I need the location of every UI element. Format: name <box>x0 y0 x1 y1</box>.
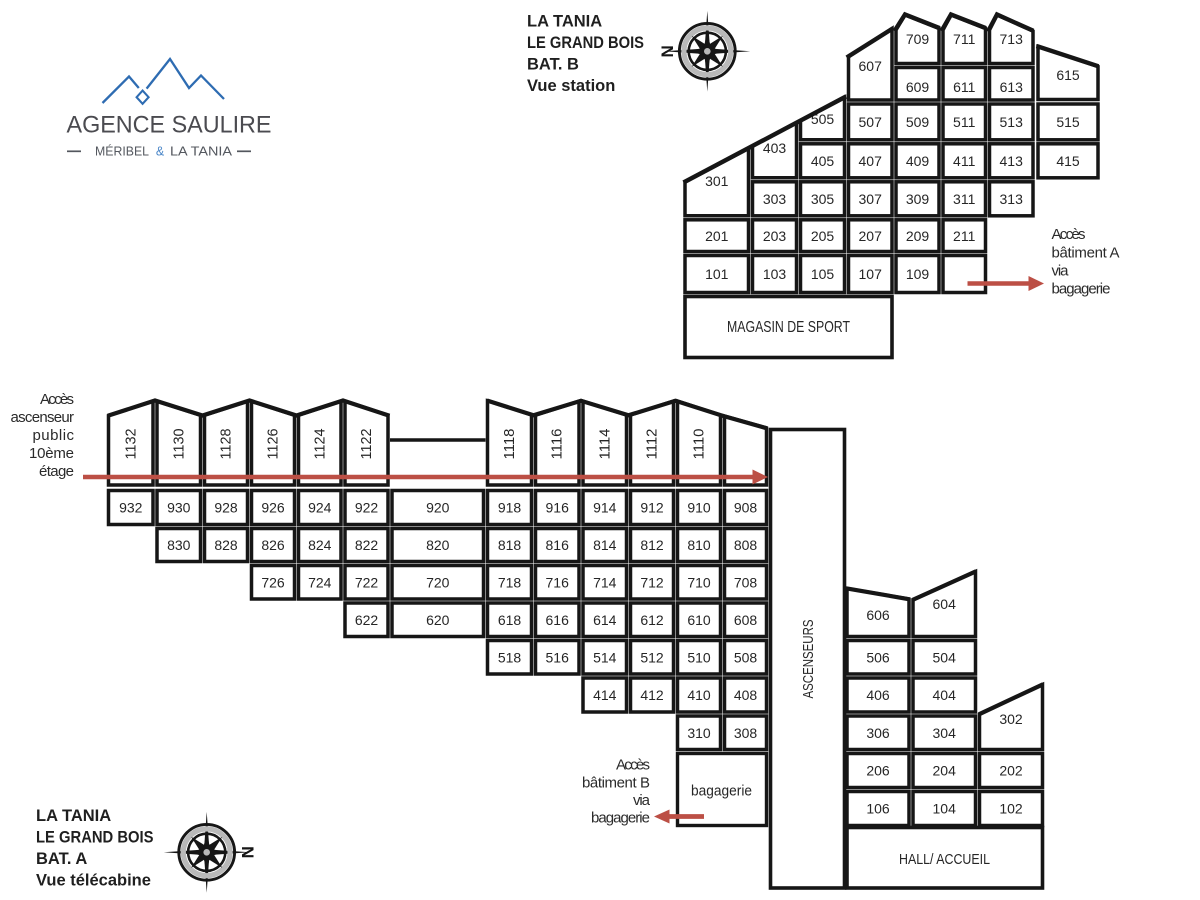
svg-text:bâtiment A: bâtiment A <box>1052 245 1120 262</box>
svg-text:609: 609 <box>906 79 930 95</box>
svg-text:via: via <box>1052 263 1070 280</box>
svg-text:105: 105 <box>811 266 835 282</box>
svg-text:930: 930 <box>167 500 191 516</box>
svg-text:LE GRAND BOIS: LE GRAND BOIS <box>527 34 644 52</box>
svg-text:622: 622 <box>355 612 379 628</box>
svg-text:LA TANIA: LA TANIA <box>170 145 233 159</box>
svg-text:211: 211 <box>953 228 976 244</box>
svg-text:508: 508 <box>734 650 758 666</box>
svg-text:104: 104 <box>933 801 957 817</box>
svg-text:513: 513 <box>1000 114 1024 130</box>
svg-text:808: 808 <box>734 537 758 553</box>
svg-text:1118: 1118 <box>501 429 518 460</box>
svg-text:726: 726 <box>261 575 285 591</box>
svg-text:107: 107 <box>859 266 883 282</box>
svg-text:826: 826 <box>261 537 285 553</box>
svg-text:305: 305 <box>811 191 835 207</box>
svg-text:506: 506 <box>866 650 890 666</box>
svg-text:Accès: Accès <box>1052 226 1086 243</box>
svg-text:404: 404 <box>933 687 957 703</box>
svg-text:201: 201 <box>705 228 729 244</box>
svg-text:908: 908 <box>734 500 758 516</box>
svg-text:412: 412 <box>640 687 664 703</box>
svg-text:Vue télécabine: Vue télécabine <box>36 872 151 890</box>
svg-text:720: 720 <box>426 575 450 591</box>
svg-text:311: 311 <box>953 191 976 207</box>
svg-text:1128: 1128 <box>218 429 235 460</box>
svg-text:102: 102 <box>999 801 1023 817</box>
svg-text:1110: 1110 <box>691 429 708 460</box>
svg-text:606: 606 <box>866 607 890 623</box>
svg-text:713: 713 <box>1000 31 1024 47</box>
svg-text:via: via <box>633 792 651 809</box>
svg-text:bagagerie: bagagerie <box>1052 281 1111 298</box>
svg-text:718: 718 <box>498 575 522 591</box>
svg-text:LA TANIA: LA TANIA <box>527 13 602 31</box>
svg-text:810: 810 <box>687 537 711 553</box>
svg-text:410: 410 <box>687 687 711 703</box>
svg-text:AGENCE SAULIRE: AGENCE SAULIRE <box>67 112 272 139</box>
svg-text:411: 411 <box>953 153 976 169</box>
svg-text:922: 922 <box>355 500 379 516</box>
svg-text:712: 712 <box>640 575 664 591</box>
svg-text:512: 512 <box>640 650 664 666</box>
svg-text:202: 202 <box>999 763 1023 779</box>
svg-text:303: 303 <box>763 191 787 207</box>
svg-text:1124: 1124 <box>311 429 328 460</box>
svg-text:612: 612 <box>640 612 664 628</box>
svg-text:101: 101 <box>705 266 729 282</box>
svg-text:BAT. A: BAT. A <box>36 850 87 868</box>
svg-text:N: N <box>238 846 257 858</box>
svg-text:bâtiment B: bâtiment B <box>582 775 650 792</box>
svg-text:620: 620 <box>426 612 450 628</box>
svg-text:308: 308 <box>734 725 758 741</box>
svg-text:608: 608 <box>734 612 758 628</box>
svg-text:bagagerie: bagagerie <box>591 810 650 827</box>
svg-text:étage: étage <box>39 463 74 480</box>
svg-text:812: 812 <box>640 537 664 553</box>
svg-text:511: 511 <box>953 114 976 130</box>
svg-text:514: 514 <box>593 650 617 666</box>
svg-text:814: 814 <box>593 537 617 553</box>
svg-text:714: 714 <box>593 575 617 591</box>
svg-text:824: 824 <box>308 537 332 553</box>
svg-text:615: 615 <box>1056 67 1080 83</box>
svg-text:1122: 1122 <box>358 429 375 460</box>
svg-text:618: 618 <box>498 612 522 628</box>
svg-text:710: 710 <box>687 575 711 591</box>
svg-text:204: 204 <box>933 763 957 779</box>
svg-text:413: 413 <box>1000 153 1024 169</box>
svg-text:MÉRIBEL: MÉRIBEL <box>95 144 149 159</box>
svg-text:926: 926 <box>261 500 285 516</box>
svg-text:205: 205 <box>811 228 835 244</box>
svg-text:203: 203 <box>763 228 787 244</box>
svg-text:306: 306 <box>866 725 890 741</box>
svg-text:828: 828 <box>214 537 238 553</box>
svg-text:414: 414 <box>593 687 617 703</box>
svg-text:bagagerie: bagagerie <box>691 783 752 800</box>
svg-text:LE GRAND BOIS: LE GRAND BOIS <box>36 829 154 847</box>
svg-text:716: 716 <box>546 575 570 591</box>
svg-text:307: 307 <box>859 191 883 207</box>
svg-text:406: 406 <box>866 687 890 703</box>
svg-text:516: 516 <box>546 650 570 666</box>
svg-text:10ème: 10ème <box>29 445 74 462</box>
svg-text:818: 818 <box>498 537 522 553</box>
svg-text:LA TANIA: LA TANIA <box>36 807 111 825</box>
svg-text:HALL/ ACCUEIL: HALL/ ACCUEIL <box>899 851 990 868</box>
svg-text:830: 830 <box>167 537 191 553</box>
svg-text:206: 206 <box>866 763 890 779</box>
svg-text:924: 924 <box>308 500 332 516</box>
svg-text:711: 711 <box>953 31 976 47</box>
svg-text:816: 816 <box>546 537 570 553</box>
svg-text:405: 405 <box>811 153 835 169</box>
svg-text:209: 209 <box>906 228 930 244</box>
svg-text:507: 507 <box>859 114 883 130</box>
svg-text:928: 928 <box>214 500 238 516</box>
svg-text:Accès: Accès <box>40 391 74 408</box>
svg-text:504: 504 <box>933 650 957 666</box>
svg-text:1116: 1116 <box>549 429 566 460</box>
svg-text:607: 607 <box>859 58 883 74</box>
svg-text:106: 106 <box>866 801 890 817</box>
svg-text:822: 822 <box>355 537 379 553</box>
svg-text:820: 820 <box>426 537 450 553</box>
svg-text:616: 616 <box>546 612 570 628</box>
svg-text:1112: 1112 <box>644 429 661 460</box>
svg-text:920: 920 <box>426 500 450 516</box>
svg-text:613: 613 <box>1000 79 1024 95</box>
svg-text:301: 301 <box>705 173 729 189</box>
svg-text:408: 408 <box>734 687 758 703</box>
svg-text:313: 313 <box>1000 191 1024 207</box>
svg-text:public: public <box>33 427 75 444</box>
svg-text:103: 103 <box>763 266 787 282</box>
svg-text:518: 518 <box>498 650 522 666</box>
svg-text:207: 207 <box>859 228 883 244</box>
svg-text:1114: 1114 <box>596 429 613 460</box>
svg-text:310: 310 <box>687 725 711 741</box>
svg-text:724: 724 <box>308 575 332 591</box>
svg-text:916: 916 <box>546 500 570 516</box>
svg-text:&: & <box>156 145 165 159</box>
svg-text:611: 611 <box>953 79 976 95</box>
svg-text:109: 109 <box>906 266 930 282</box>
svg-text:N: N <box>658 45 677 57</box>
svg-text:708: 708 <box>734 575 758 591</box>
svg-text:Vue station: Vue station <box>527 77 615 95</box>
svg-text:Accès: Accès <box>616 757 650 774</box>
svg-text:MAGASIN DE SPORT: MAGASIN DE SPORT <box>727 319 850 336</box>
svg-text:407: 407 <box>859 153 883 169</box>
svg-text:309: 309 <box>906 191 930 207</box>
svg-text:910: 910 <box>687 500 711 516</box>
svg-text:1130: 1130 <box>170 429 187 460</box>
svg-text:415: 415 <box>1056 153 1080 169</box>
svg-text:509: 509 <box>906 114 930 130</box>
svg-text:614: 614 <box>593 612 617 628</box>
svg-text:1126: 1126 <box>265 429 282 460</box>
svg-text:ascenseur: ascenseur <box>11 409 75 426</box>
svg-text:510: 510 <box>687 650 711 666</box>
svg-text:403: 403 <box>763 140 787 156</box>
svg-text:932: 932 <box>119 500 143 516</box>
svg-text:604: 604 <box>933 596 957 612</box>
svg-text:ASCENSEURS: ASCENSEURS <box>800 620 817 699</box>
svg-text:722: 722 <box>355 575 379 591</box>
svg-text:302: 302 <box>999 711 1023 727</box>
svg-text:304: 304 <box>933 725 957 741</box>
svg-text:610: 610 <box>687 612 711 628</box>
svg-text:914: 914 <box>593 500 617 516</box>
svg-text:709: 709 <box>906 31 930 47</box>
svg-text:912: 912 <box>640 500 664 516</box>
svg-text:409: 409 <box>906 153 930 169</box>
svg-text:918: 918 <box>498 500 522 516</box>
svg-text:515: 515 <box>1056 114 1080 130</box>
svg-text:BAT. B: BAT. B <box>527 56 579 74</box>
svg-text:1132: 1132 <box>122 429 139 460</box>
